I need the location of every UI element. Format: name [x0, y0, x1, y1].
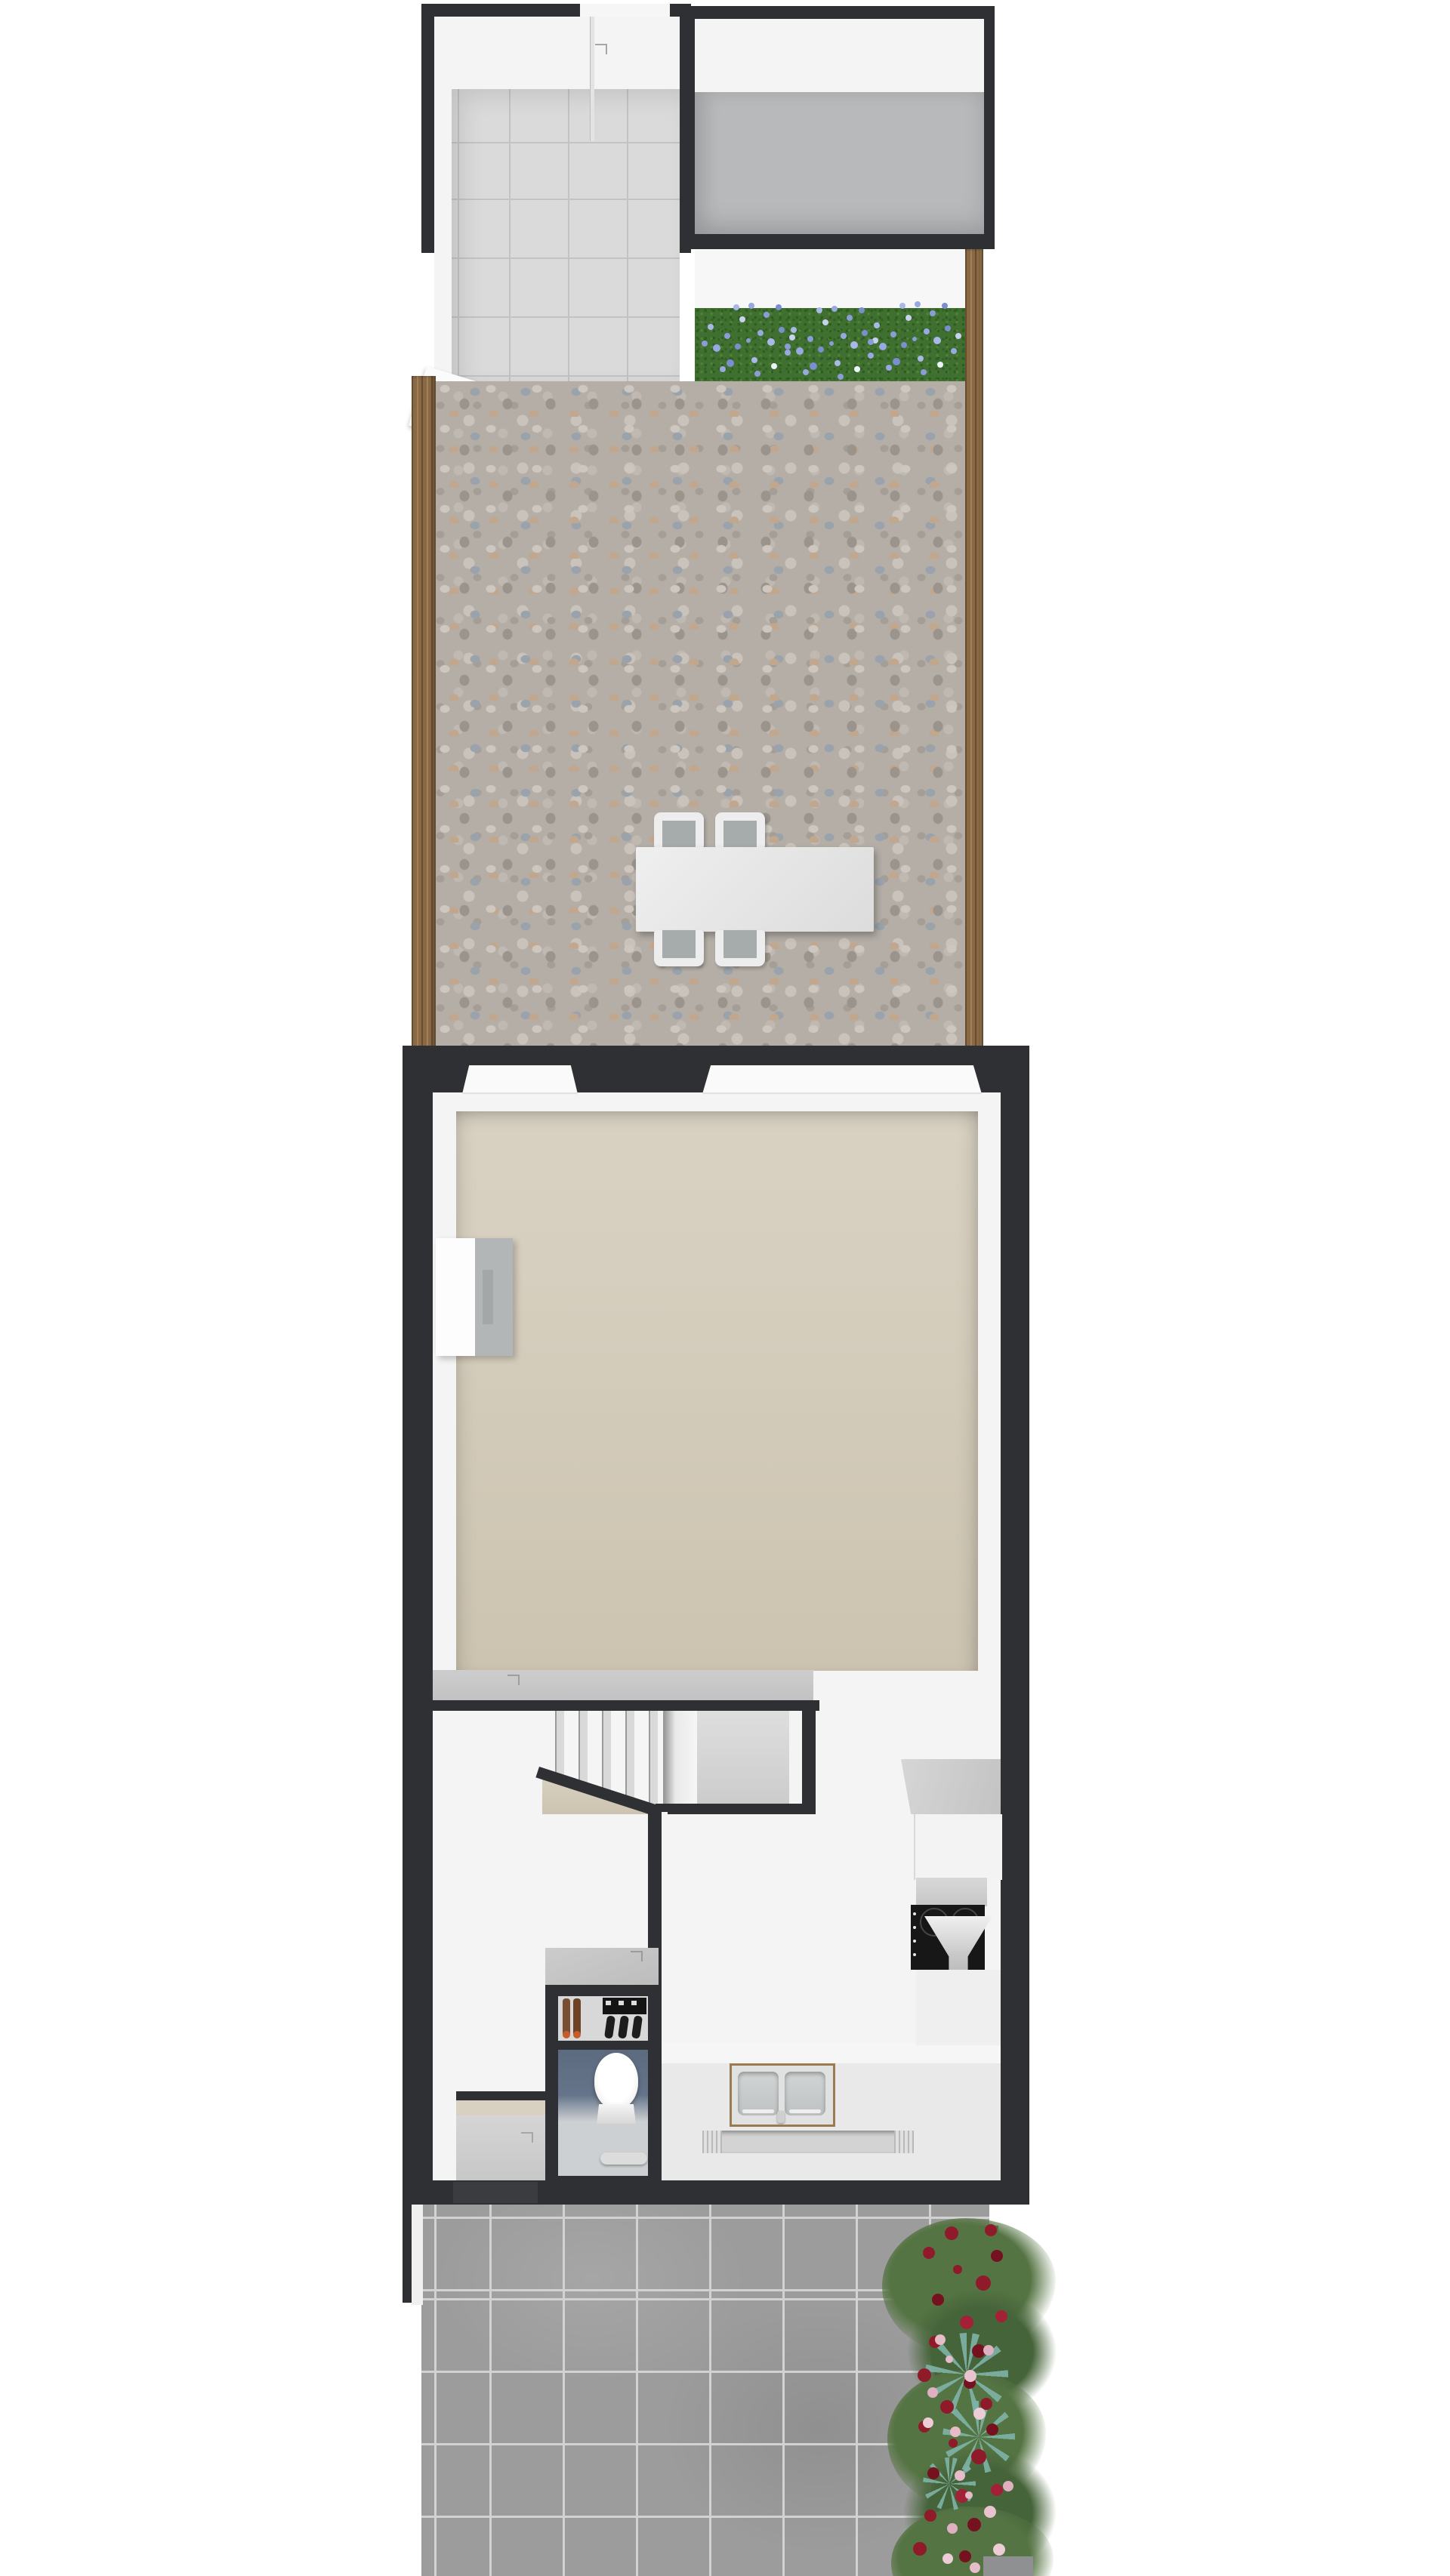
pink-flower-cluster-icon	[965, 2491, 973, 2499]
counter-strip-right	[916, 1878, 987, 1906]
pink-flower-cluster-icon	[946, 2356, 953, 2363]
groove-hatch-left	[702, 2131, 722, 2153]
window-top-left	[462, 1065, 578, 1094]
stair-bottom-tread	[663, 1711, 697, 1814]
entrance-door-swing-icon	[521, 2132, 533, 2143]
living-room-floor	[456, 1111, 978, 1671]
meter-cable	[618, 2015, 629, 2038]
vestibule-wall	[456, 2091, 545, 2100]
tall-cabinet-top	[901, 1759, 1001, 1814]
entrance-floor	[456, 2115, 545, 2180]
stairwell-right-wall	[802, 1700, 816, 1814]
utility-closet-interior	[558, 1996, 648, 2041]
meter-cable	[604, 2015, 615, 2038]
shed-inner-wall-top	[434, 17, 680, 91]
garden-chair	[654, 812, 704, 849]
agave-plant	[923, 2457, 976, 2510]
stairwell-bottom-wall	[656, 1804, 816, 1814]
wooden-fence-right	[965, 249, 983, 1048]
divider-wall-edge	[433, 1700, 819, 1711]
wc-doormat	[600, 2152, 647, 2165]
terrace-left-wall	[403, 2205, 412, 2303]
basin-handle	[742, 2109, 774, 2113]
divider-door-swing-icon	[507, 1675, 520, 1685]
chair-seat	[723, 930, 757, 958]
counter-drainer-groove	[702, 2131, 914, 2153]
hall-kitchen-wall-face	[662, 1812, 668, 2043]
storage-inner-wall-top	[695, 19, 984, 92]
wooden-fence-left	[412, 376, 436, 1048]
stairwell-right-face	[789, 1711, 802, 1804]
fence-cap-right	[983, 249, 995, 355]
kitchen-sink	[730, 2063, 835, 2127]
rose-cluster-icon	[949, 2439, 958, 2448]
divider-wall-top-face	[433, 1670, 813, 1700]
garden-table	[636, 847, 874, 932]
groove-hatch-right	[894, 2131, 914, 2153]
closet-door-swing-icon	[631, 1951, 643, 1961]
shed-door-opening	[580, 4, 670, 17]
stair-landing	[697, 1711, 789, 1804]
storage-floor	[695, 92, 984, 234]
toilet-tank	[597, 2104, 636, 2124]
window-top-right	[702, 1065, 982, 1094]
wall-cabinet	[436, 1238, 513, 1356]
pipe-cap-icon	[573, 2031, 581, 2038]
wc-room	[558, 2050, 648, 2176]
chair-seat	[662, 821, 696, 849]
shed-inner-wall-left	[434, 89, 452, 381]
blue-flower-cluster-icon	[829, 341, 834, 346]
blue-flower-cluster-icon	[746, 338, 751, 343]
floorplan-canvas	[0, 0, 1450, 2576]
kitchen-counter-back-edge	[662, 2043, 1001, 2063]
shed-door-leaf	[590, 17, 594, 141]
garden-chair	[654, 930, 704, 966]
shed-floor	[452, 89, 680, 381]
blue-flower-cluster-icon	[912, 337, 917, 341]
wall-cabinet-side	[475, 1238, 513, 1356]
wall-cabinet-handle-groove	[483, 1270, 493, 1324]
terrace-left-edge	[412, 2205, 423, 2305]
chair-seat	[662, 930, 696, 958]
garden-back-wall	[695, 249, 967, 308]
terrace-bottom-wall	[983, 2556, 1033, 2576]
meter-box-switches	[606, 2001, 643, 2005]
vestibule-wall-face	[456, 2100, 545, 2115]
wall-cabinet-top	[436, 1238, 475, 1356]
shed-door-swing-icon	[595, 44, 607, 54]
tall-cabinet-front	[914, 1814, 1002, 1880]
rose-cluster-icon	[953, 2265, 962, 2274]
garden-chair	[715, 930, 765, 966]
counter-right-column	[916, 1970, 1001, 2045]
chair-seat	[723, 821, 757, 849]
garden-chair	[715, 812, 765, 849]
meter-cable	[631, 2015, 643, 2038]
front-door	[453, 2182, 538, 2203]
pipe-cap-icon	[563, 2031, 570, 2038]
knob-icon	[913, 1912, 916, 1915]
basin-handle	[789, 2109, 821, 2113]
sink-faucet-icon	[777, 2111, 785, 2123]
toilet-bowl	[594, 2053, 638, 2109]
